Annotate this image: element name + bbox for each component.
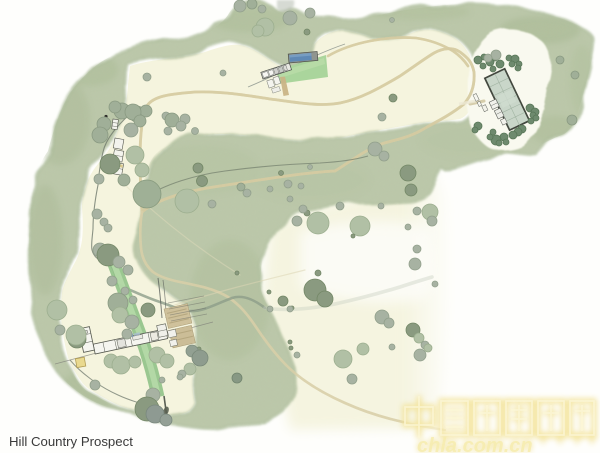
- svg-text:chla.com.cn: chla.com.cn: [417, 435, 533, 453]
- svg-text:Hill Country Prospect: Hill Country Prospect: [9, 434, 133, 449]
